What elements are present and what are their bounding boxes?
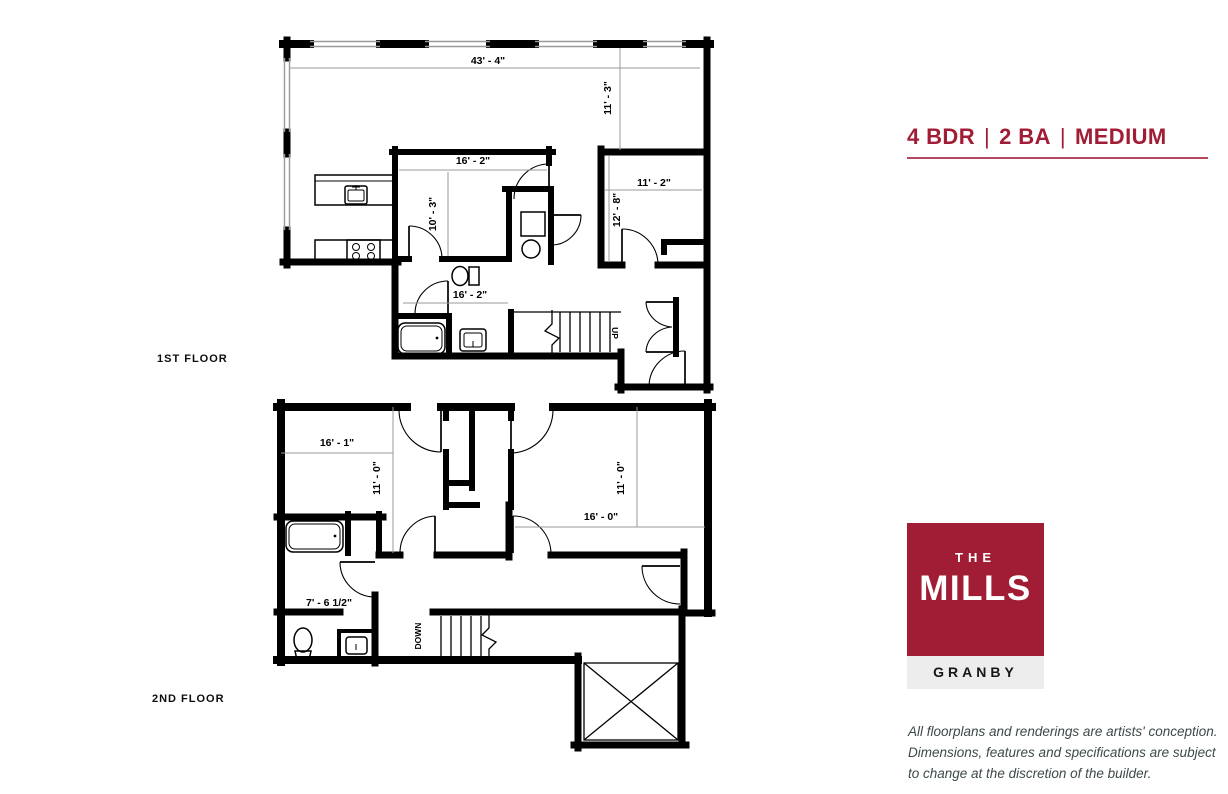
f1-bath-fixtures [398, 212, 545, 354]
dim-f2-bath-width: 7' - 6 1/2" [306, 597, 352, 609]
second-floor-plan: 16' - 1" 11' - 0" 11' - 0" 16' - 0" 7' -… [277, 403, 712, 748]
title-bedrooms: 4 BDR [907, 124, 975, 149]
first-floor-label: 1ST FLOOR [157, 353, 228, 365]
floorplan-sheet: 43' - 4" 11' - 3" 16' - 2" 10' - 3" 11' … [0, 0, 1228, 794]
washer-icon [521, 212, 545, 236]
title-block: 4 BDR|2 BA|MEDIUM [907, 124, 1209, 159]
title-separator-1: | [975, 124, 999, 149]
dim-f1-bath-width: 16' - 2" [453, 289, 487, 301]
f2-open-shaft [584, 663, 678, 740]
f1-exterior-walls [283, 40, 710, 390]
disclaimer-line-1: All floorplans and renderings are artist… [908, 721, 1228, 742]
title-size: MEDIUM [1075, 124, 1167, 149]
toilet2-icon [294, 628, 312, 652]
f2-dimension-lines [281, 407, 705, 553]
dim-f2-bedroom3-depth: 11' - 0" [371, 461, 383, 495]
dim-f2-bedroom4-width: 16' - 0" [584, 511, 618, 523]
dim-f1-bedroom1-depth: 10' - 3" [427, 197, 439, 231]
f1-kitchen [315, 175, 393, 262]
title-underline [907, 157, 1208, 159]
stairs-down-label: DOWN [413, 623, 423, 650]
logo-the: THE [907, 523, 1044, 565]
dim-f2-bedroom4-depth: 11' - 0" [615, 461, 627, 495]
first-floor-plan: 43' - 4" 11' - 3" 16' - 2" 10' - 3" 11' … [283, 40, 710, 390]
f2-hall-walls [379, 505, 558, 557]
page-title: 4 BDR|2 BA|MEDIUM [907, 124, 1209, 150]
logo-location: GRANBY [907, 656, 1044, 689]
dim-f1-bedroom2-width: 11' - 2" [637, 177, 671, 189]
f1-interior-walls [392, 149, 553, 356]
second-floor-label: 2ND FLOOR [152, 693, 225, 705]
logo-mills: MILLS [907, 569, 1044, 609]
disclaimer-line-3: to change at the discretion of the build… [908, 763, 1228, 784]
dryer-icon [522, 240, 540, 258]
vanity [339, 631, 375, 659]
f2-closet-walls [446, 408, 511, 507]
brand-logo: THE MILLS GRANBY [907, 523, 1044, 689]
toilet-icon [469, 267, 479, 285]
dim-f2-bedroom3-width: 16' - 1" [320, 437, 354, 449]
f2-right-and-shaft-walls [433, 552, 712, 748]
stairs-up-label: UP [610, 327, 620, 339]
f2-fixtures [286, 521, 375, 660]
dim-f1-overall-width: 43' - 4" [471, 55, 505, 67]
dim-f1-living-depth: 11' - 3" [602, 81, 614, 115]
title-separator-2: | [1051, 124, 1075, 149]
dim-f1-bedroom1-width: 16' - 2" [456, 155, 490, 167]
f1-entry-closet-walls [664, 242, 703, 354]
logo-main-box: THE MILLS [907, 523, 1044, 656]
f2-stairs-down [441, 614, 496, 658]
disclaimer-text: All floorplans and renderings are artist… [908, 721, 1228, 784]
disclaimer-line-2: Dimensions, features and specifications … [908, 742, 1228, 763]
title-baths: 2 BA [999, 124, 1051, 149]
dim-f1-bedroom2-depth: 12' - 8" [611, 193, 623, 227]
f1-stairs-up [514, 310, 621, 357]
